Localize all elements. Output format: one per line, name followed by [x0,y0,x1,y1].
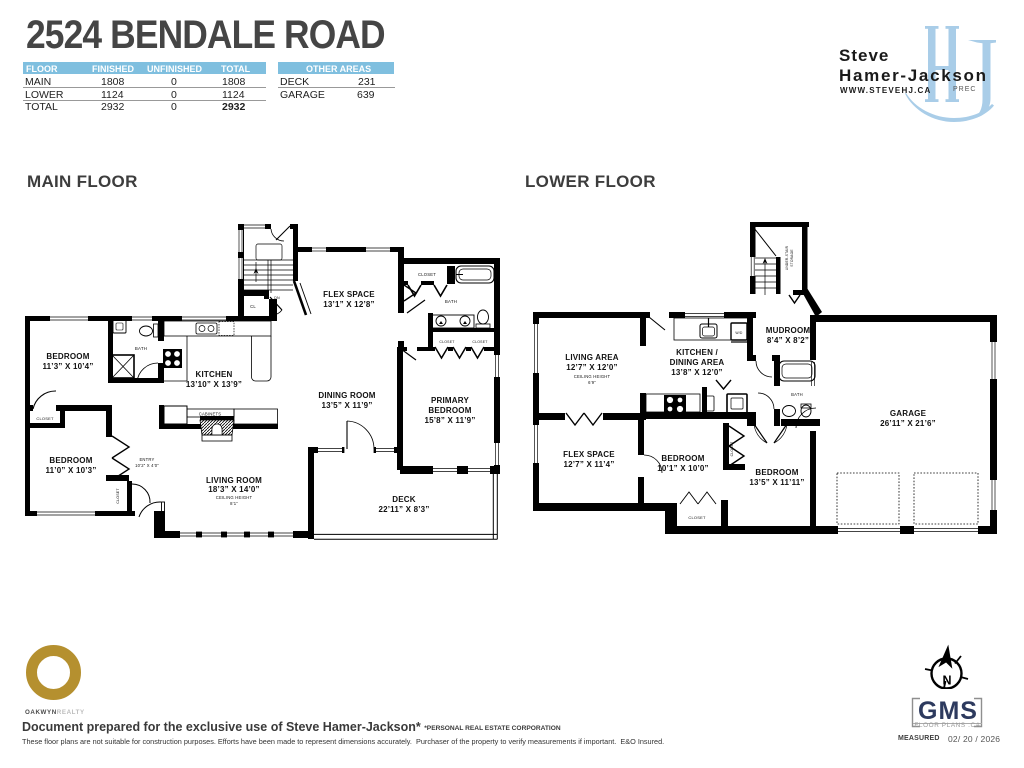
svg-text:N: N [942,674,951,688]
svg-text:FLOOR PLANS .CA: FLOOR PLANS .CA [914,722,980,729]
